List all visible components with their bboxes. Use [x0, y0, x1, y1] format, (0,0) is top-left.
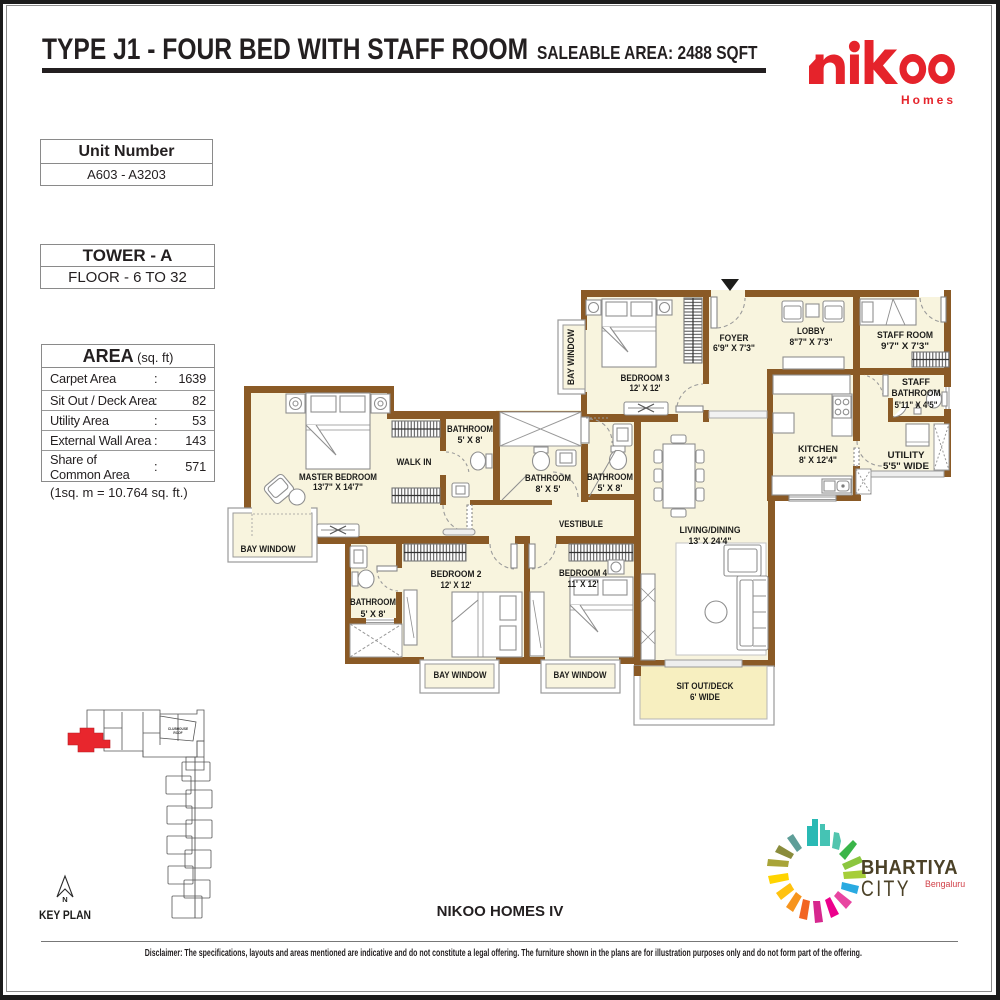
svg-text:Bengaluru: Bengaluru — [925, 879, 965, 889]
svg-text:CITY: CITY — [861, 876, 911, 901]
